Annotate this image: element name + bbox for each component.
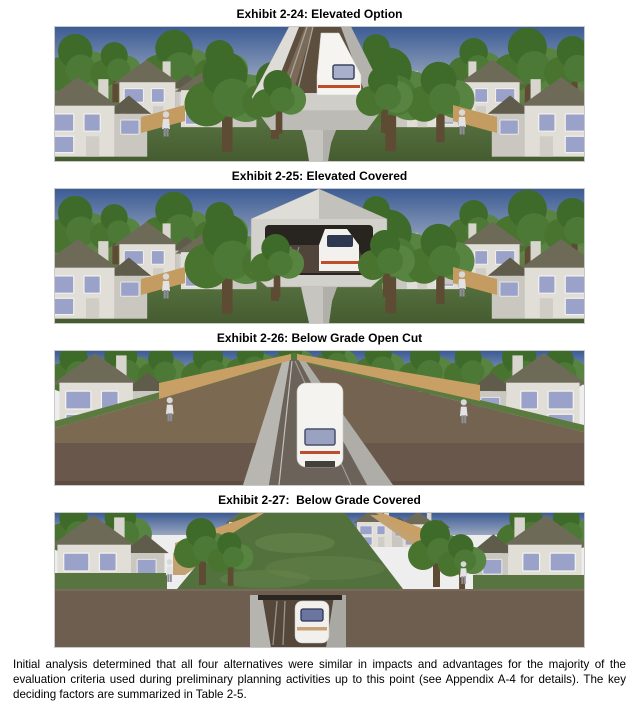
exhibit-image	[54, 512, 585, 648]
exhibit-caption: Exhibit 2-27: Below Grade Covered	[12, 493, 627, 507]
elevated-covered-rendering	[55, 189, 584, 323]
exhibit-caption: Exhibit 2-26: Below Grade Open Cut	[12, 331, 627, 345]
soil-edge	[55, 589, 584, 591]
elevated-option-rendering	[55, 27, 584, 161]
train	[295, 601, 329, 643]
exhibit-2-27: Exhibit 2-27: Below Grade Covered	[12, 493, 627, 648]
exhibit-2-24: Exhibit 2-24: Elevated Option	[12, 7, 627, 162]
exhibit-image	[54, 350, 585, 486]
exhibit-2-25: Exhibit 2-25: Elevated Covered	[12, 169, 627, 324]
below-grade-open-cut-rendering	[55, 351, 584, 485]
below-grade-covered-rendering	[55, 513, 584, 647]
grass-right	[473, 575, 584, 589]
train	[297, 383, 343, 467]
body-paragraph: Initial analysis determined that all fou…	[13, 657, 626, 702]
exhibit-image	[54, 188, 585, 324]
grass-left	[55, 573, 167, 589]
exhibit-caption: Exhibit 2-24: Elevated Option	[12, 7, 627, 21]
document-page: Exhibit 2-24: Elevated Option	[0, 0, 639, 702]
exhibit-image	[54, 26, 585, 162]
tunnel-cutaway	[250, 595, 346, 647]
exhibit-2-26: Exhibit 2-26: Below Grade Open Cut	[12, 331, 627, 486]
exhibit-caption: Exhibit 2-25: Elevated Covered	[12, 169, 627, 183]
